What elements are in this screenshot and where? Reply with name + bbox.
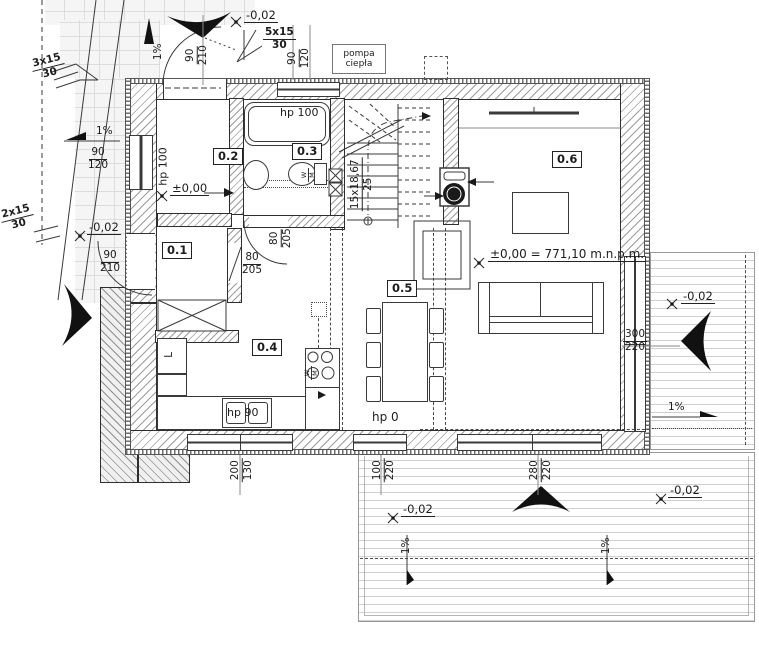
chair bbox=[366, 308, 381, 334]
hp100-bathtub: hp 100 bbox=[280, 106, 318, 119]
chair bbox=[366, 342, 381, 368]
level-minus-terrace-bl: -0,02 bbox=[401, 502, 435, 517]
window-left-hp100 bbox=[129, 135, 153, 190]
chimney-alcove bbox=[414, 221, 470, 289]
level-marker-icon bbox=[157, 191, 167, 201]
kitchen-counter-left bbox=[157, 374, 187, 396]
slope-label-topleft-h: 1% bbox=[96, 126, 113, 138]
stairs-dimension: 15x18,6725 bbox=[330, 172, 394, 198]
wall-r03-stairs bbox=[330, 98, 345, 230]
chair bbox=[429, 376, 444, 402]
slope-label-terrace-right: 1% bbox=[668, 402, 685, 414]
heat-pump-label-line1: pompa bbox=[333, 49, 385, 59]
room-label-0-1: 0.1 bbox=[162, 242, 192, 259]
sofa-seat-line-2 bbox=[489, 322, 593, 323]
sofa-armrest-right bbox=[592, 282, 593, 334]
dim-window-left: 90120 bbox=[88, 147, 108, 172]
level-minus-terrace-right: -0,02 bbox=[681, 289, 715, 304]
ext-stairs-2x15: 2x1530 bbox=[0, 202, 36, 234]
level-zero-full: ±0,00 = 771,10 m.n.p.m. bbox=[488, 247, 646, 262]
window-terrace-glazing bbox=[457, 434, 602, 451]
dim-door-top: 90210 bbox=[180, 43, 214, 73]
room-label-0-4: 0.4 bbox=[252, 339, 282, 356]
room-label-0-3: 0.3 bbox=[292, 143, 322, 160]
wall-under-r02 bbox=[157, 213, 232, 227]
wm-label-cooktop: W M bbox=[304, 366, 318, 380]
terrace-right-dots bbox=[652, 428, 752, 429]
slope-label-terrace-b1: 1% bbox=[401, 535, 413, 557]
level-minus-top: -0,02 bbox=[244, 8, 278, 23]
terrace-right bbox=[650, 252, 755, 450]
stone-paving-topleft bbox=[60, 20, 160, 78]
sofa-divider bbox=[540, 282, 541, 316]
dining-table bbox=[382, 302, 428, 402]
hp0-glazing: hp 0 bbox=[372, 410, 399, 424]
dim-window-terrace: 280220 bbox=[521, 458, 561, 490]
sofa-seat-line-1 bbox=[489, 316, 593, 317]
sofa-armrest-left bbox=[489, 282, 490, 334]
hood-duct-dash bbox=[318, 318, 319, 348]
room-label-0-2: 0.2 bbox=[213, 148, 243, 165]
wall-stairs-living bbox=[443, 98, 459, 225]
wm-label-bath: W M bbox=[301, 168, 315, 182]
ext-stairs-3x15: 3x1530 bbox=[30, 51, 68, 83]
chair bbox=[429, 308, 444, 334]
tv bbox=[489, 107, 579, 113]
hp100-window-left: hp 100 bbox=[157, 145, 170, 189]
washbasin bbox=[243, 160, 269, 190]
living-table bbox=[512, 192, 569, 234]
overhang-dash-glazing bbox=[420, 429, 650, 430]
dim-door-bath: 80205 bbox=[264, 226, 298, 254]
dim-door-left: 90210 bbox=[100, 250, 120, 275]
toilet-tank bbox=[314, 163, 327, 185]
room-label-0-5: 0.5 bbox=[387, 280, 417, 297]
overhang-dash-2b bbox=[445, 228, 446, 430]
window-terrace-mullion bbox=[532, 434, 533, 451]
hp90-sink: hp 90 bbox=[227, 406, 258, 419]
window-kitchen-mullion bbox=[240, 434, 241, 451]
level-marker-icon bbox=[474, 258, 484, 268]
window-top-bath bbox=[277, 82, 340, 97]
heat-pump-label-line2: ciepła bbox=[333, 59, 385, 69]
room-label-0-6: 0.6 bbox=[552, 151, 582, 168]
level-zero-r02: ±0,00 bbox=[170, 181, 209, 196]
slope-label-topleft-v: 1% bbox=[153, 41, 165, 63]
dim-window-living: 300220 bbox=[623, 329, 647, 354]
heatpump-outdoor-unit bbox=[424, 56, 448, 80]
cooker-hood bbox=[311, 302, 327, 317]
heat-pump-box: pompa ciepła bbox=[332, 44, 386, 74]
dim-window-top: 90120 bbox=[282, 46, 316, 76]
door-opening-top bbox=[163, 79, 227, 99]
door-opening-hall bbox=[228, 243, 241, 283]
dim-door-hall: 80205 bbox=[242, 252, 262, 277]
floor-plan: pompa ciepła bbox=[0, 0, 759, 645]
dim-window-dining: 100220 bbox=[364, 458, 404, 490]
chair bbox=[429, 342, 444, 368]
window-dining bbox=[353, 434, 407, 451]
level-minus-terrace-br: -0,02 bbox=[668, 483, 702, 498]
chair bbox=[366, 376, 381, 402]
terrace-bottom-dash bbox=[360, 558, 753, 559]
terrace-right-dash bbox=[745, 255, 746, 445]
level-minus-left: -0,02 bbox=[87, 220, 121, 235]
fridge-label: L bbox=[164, 349, 176, 361]
dim-window-kitchen: 200130 bbox=[222, 458, 262, 490]
door-opening-left bbox=[127, 233, 155, 290]
overhang-dash-1b bbox=[342, 228, 343, 430]
fireplace bbox=[424, 168, 494, 206]
sofa bbox=[478, 282, 604, 334]
wardrobe bbox=[158, 300, 226, 331]
slope-label-terrace-b2: 1% bbox=[601, 535, 613, 557]
